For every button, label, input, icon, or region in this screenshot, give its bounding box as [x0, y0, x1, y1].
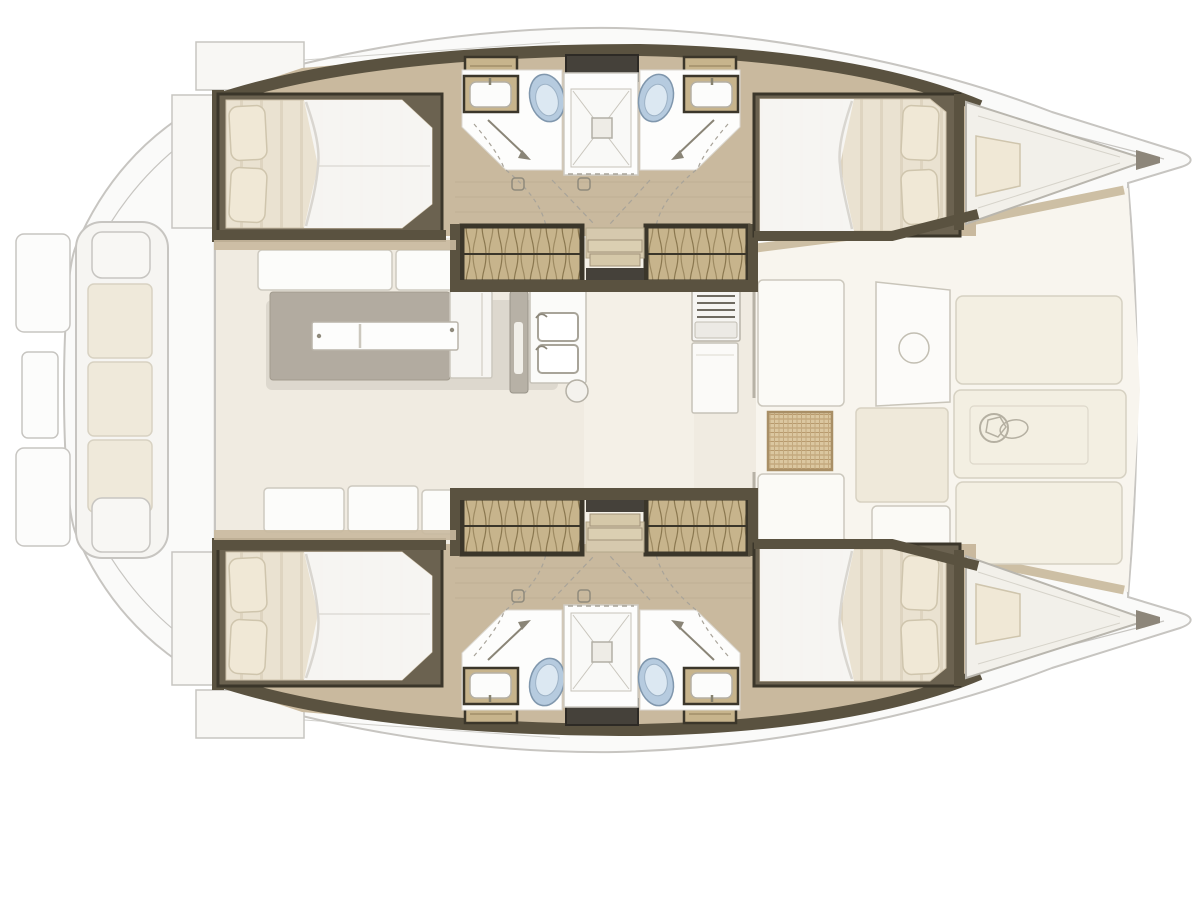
sink-basin-icon	[691, 82, 732, 107]
swim-platform-top	[16, 234, 70, 332]
swim-platform-bottom	[16, 448, 70, 546]
wood-strip-inboard	[214, 240, 456, 250]
forepeak-cushion	[976, 136, 1020, 196]
galley-sink-basin	[538, 345, 578, 373]
sink-basin-icon	[470, 673, 511, 698]
transom-center-step	[22, 352, 58, 438]
cockpit-bench-pad-bottom	[92, 498, 150, 552]
galley-sink-basin	[538, 313, 578, 341]
steps-base-wall	[452, 280, 758, 292]
sink-basin-icon	[470, 82, 511, 107]
stair-tread	[588, 528, 642, 540]
cockpit-bench-cushion	[88, 284, 152, 358]
bed-pillow	[901, 169, 940, 225]
stove-oven-front	[695, 322, 737, 338]
sink-basin-icon	[691, 673, 732, 698]
forepeak-bulkhead	[954, 550, 964, 686]
stair-tread	[588, 240, 642, 252]
bed-pillow	[901, 619, 940, 675]
catamaran-floorplan-svg	[0, 0, 1200, 900]
bed-pillow	[229, 105, 268, 161]
salon-bench-top-1	[258, 250, 392, 290]
galley-stool	[566, 380, 588, 402]
salon-bench-bottom-1	[264, 488, 344, 532]
cooktop	[312, 322, 458, 350]
bed-pillow	[901, 555, 940, 611]
cooktop-knob	[450, 328, 454, 332]
galley-counter-starboard	[692, 343, 738, 413]
foredeck-sunpad	[956, 482, 1122, 564]
forepeak-cushion	[976, 584, 1020, 644]
cockpit-bench-cushion	[88, 362, 152, 436]
foredeck-panel-angled	[876, 282, 950, 406]
foredeck-panel	[758, 280, 844, 406]
cockpit-bench-pad-top	[92, 232, 150, 278]
foredeck-cushion	[856, 408, 948, 502]
steps-side-post	[450, 224, 460, 292]
foredeck	[756, 188, 1140, 592]
mast-post-inner	[514, 322, 523, 374]
foredeck-sunpad	[956, 296, 1122, 384]
cooktop-knob	[317, 334, 321, 338]
forepeak-bulkhead	[954, 94, 964, 230]
steps-base-wall	[452, 488, 758, 500]
bed-pillow	[229, 557, 268, 613]
bed-pillow	[229, 619, 268, 675]
stair-tread	[590, 254, 640, 266]
wood-strip-inboard	[214, 530, 456, 540]
stair-tread	[590, 514, 640, 526]
shower-drain	[592, 642, 612, 662]
bed-pillow	[229, 167, 268, 223]
shower-drain	[592, 118, 612, 138]
bed-duvet	[304, 552, 432, 680]
salon-bench-bottom-2	[348, 486, 418, 532]
steps-side-post	[450, 488, 460, 556]
foredeck-sunpad	[954, 390, 1126, 478]
bed-pillow	[901, 105, 940, 161]
foredeck-rattan-hatch	[768, 412, 832, 470]
floorplan-canvas: Catamaran interior layout floor plan, bo…	[0, 0, 1200, 900]
bed-duvet	[304, 100, 432, 228]
